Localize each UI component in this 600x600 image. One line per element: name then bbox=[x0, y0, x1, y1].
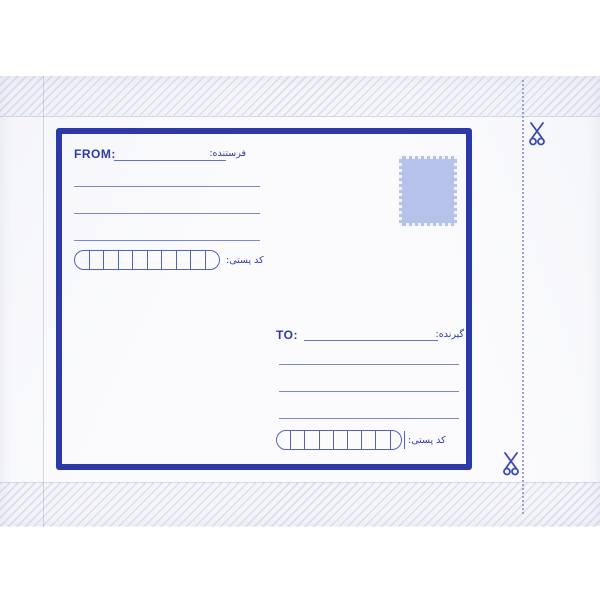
address-frame: FROM: فرستنده: کد پستی: TO: گیرنده: کد پ… bbox=[56, 128, 472, 470]
stamp-placeholder bbox=[399, 156, 457, 226]
postal-code-cell bbox=[132, 251, 147, 269]
postal-code-cell bbox=[176, 251, 191, 269]
postal-code-cell bbox=[89, 251, 104, 269]
to-postal-code-box bbox=[276, 430, 402, 450]
postal-code-cell bbox=[118, 251, 133, 269]
to-address-line bbox=[279, 391, 459, 418]
postal-code-cell bbox=[304, 431, 318, 449]
from-address-line bbox=[74, 213, 260, 240]
postal-code-cell bbox=[103, 251, 118, 269]
from-name-line bbox=[114, 160, 226, 161]
postal-code-cell bbox=[375, 431, 389, 449]
receiver-label-fa: گیرنده: bbox=[424, 329, 464, 341]
postal-code-cell bbox=[319, 431, 333, 449]
to-address-line bbox=[279, 364, 459, 391]
quilted-texture-band-bottom bbox=[0, 482, 600, 527]
from-postal-code-label-fa: کد پستی: bbox=[226, 255, 264, 266]
postal-code-cell bbox=[333, 431, 347, 449]
envelope-seam-line bbox=[43, 76, 44, 526]
postal-code-cell bbox=[147, 251, 162, 269]
padded-envelope: FROM: فرستنده: کد پستی: TO: گیرنده: کد پ… bbox=[0, 76, 600, 526]
sender-label-fa: فرستنده: bbox=[206, 148, 246, 160]
to-postal-code-label-fa: کد پستی: bbox=[408, 435, 446, 446]
from-postal-code-box bbox=[74, 250, 220, 270]
quilted-texture-band-top bbox=[0, 76, 600, 117]
postal-code-cell bbox=[347, 431, 361, 449]
scissors-icon bbox=[502, 452, 520, 476]
postal-code-cell bbox=[75, 251, 89, 269]
postal-code-cell bbox=[190, 251, 205, 269]
postal-code-cell bbox=[390, 431, 404, 449]
postal-code-cell bbox=[277, 431, 290, 449]
postal-code-cell bbox=[161, 251, 176, 269]
to-label: TO: bbox=[276, 328, 298, 342]
postal-code-cell bbox=[205, 251, 220, 269]
postal-code-cell bbox=[361, 431, 375, 449]
cut-guide-dotted-line bbox=[522, 80, 524, 514]
from-postal-row: کد پستی: bbox=[74, 250, 264, 270]
scissors-icon bbox=[528, 122, 546, 146]
postal-code-cell bbox=[290, 431, 304, 449]
to-postal-row: کد پستی: bbox=[276, 430, 446, 450]
from-label: FROM: bbox=[74, 147, 116, 161]
to-name-line bbox=[304, 340, 438, 341]
from-address-line bbox=[74, 186, 260, 213]
